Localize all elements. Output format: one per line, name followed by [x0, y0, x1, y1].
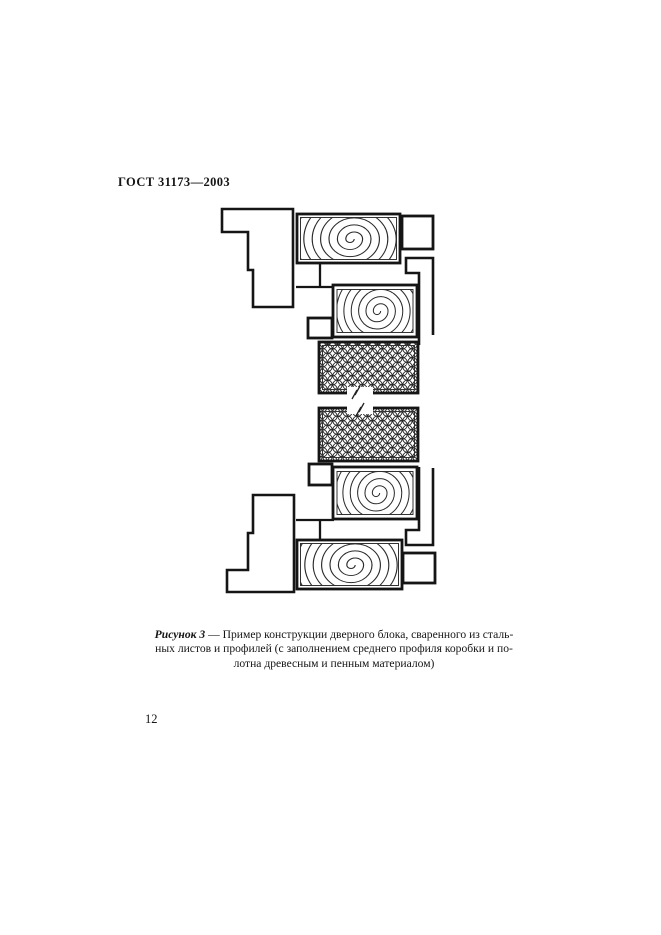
figure-drawing	[0, 0, 661, 935]
frame-wood-filler-bottom	[288, 516, 414, 618]
leaf-sheet-step-top	[296, 263, 334, 287]
frame-cap-bottom	[403, 553, 435, 583]
document-page: ГОСТ 31173—2003	[0, 0, 661, 935]
leaf-sheet-step-bottom	[296, 520, 334, 540]
break-symbol	[347, 386, 373, 416]
figure-caption: Рисунок 3 — Пример конструкции дверного …	[131, 628, 537, 671]
leaf-corner-block-bottom	[309, 464, 332, 485]
frame-wood-filler-top	[287, 190, 413, 292]
figure-caption-line2: ных листов и профилей (с заполнением сре…	[131, 642, 537, 656]
figure-caption-line1: Рисунок 3 — Пример конструкции дверного …	[131, 628, 537, 642]
figure-caption-label: Рисунок 3	[155, 628, 206, 641]
figure-caption-line3: лотна древесным и пенным материалом)	[131, 657, 537, 671]
page-number: 12	[145, 712, 158, 727]
figure-caption-line1-text: — Пример конструкции дверного блока, сва…	[205, 628, 513, 641]
frame-profile-top	[222, 209, 293, 307]
frame-profile-bottom	[227, 495, 294, 592]
frame-cap-top	[402, 216, 433, 249]
leaf-corner-block-top	[308, 318, 332, 338]
foam-filler-top	[319, 342, 418, 393]
foam-filler-bottom	[319, 408, 418, 461]
